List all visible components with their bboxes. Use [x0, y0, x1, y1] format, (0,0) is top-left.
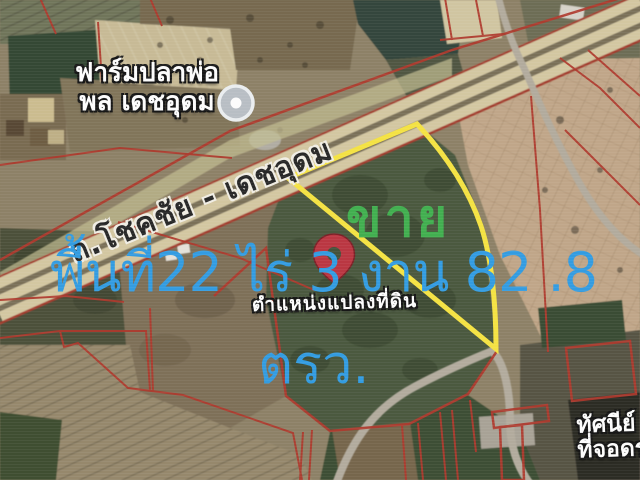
corner-poi-label: ทัศนีย์ ที่จอดรถ — [576, 410, 640, 464]
satellite-map-photo: ฟาร์มปลาพ่อ พล เดชอุดม ถ.โชคชัย - เดชอุด… — [0, 0, 640, 480]
farm-poi-label: ฟาร์มปลาพ่อ พล เดชอุดม — [58, 59, 236, 117]
corner-poi-label-line2: ที่จอดรถ — [577, 435, 640, 464]
area-size-text-line2: ตรว. — [258, 338, 370, 392]
area-size-text-line1: พื้นที่22 ไร่ 3 งาน 82 .8 — [50, 246, 597, 300]
farm-poi-label-line2: พล เดชอุดม — [79, 87, 214, 117]
farm-poi-label-line1: ฟาร์มปลาพ่อ — [75, 58, 219, 88]
corner-poi-label-line1: ทัศนีย์ — [576, 411, 636, 439]
